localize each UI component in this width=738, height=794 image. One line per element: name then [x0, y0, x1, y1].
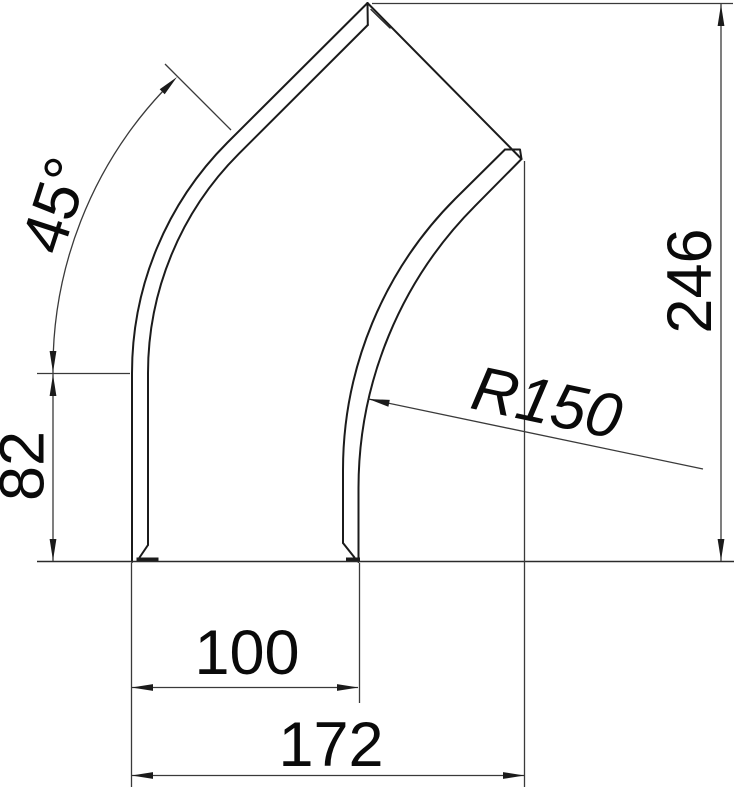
left-foot-chamfer: [140, 545, 149, 558]
bend-45deg-dimension-drawing: 45° 82 246 R150 100 172: [0, 0, 738, 794]
part-outline: [132, 3, 522, 562]
label-side-height-82: 82: [0, 431, 58, 501]
arrow-246-down-icon: [718, 539, 725, 561]
ext-line-45deg: [165, 64, 231, 130]
dimension-labels: 45° 82 246 R150 100 172: [0, 149, 725, 780]
right-foot-chamfer: [343, 543, 355, 558]
label-radius-r150: R150: [466, 353, 628, 453]
arrow-100-left-icon: [132, 684, 154, 691]
label-overall-height-246: 246: [655, 228, 725, 333]
arrow-45arc-upright-icon: [160, 77, 177, 94]
outer-rail-inner-face: [148, 25, 368, 545]
label-width-100: 100: [194, 618, 299, 688]
label-overall-width-172: 172: [278, 710, 383, 780]
top-end-cap-inner-edge: [371, 10, 390, 29]
arrow-172-right-icon: [503, 772, 525, 779]
dimension-lines: [37, 4, 734, 788]
arrow-100-right-icon: [337, 684, 359, 691]
label-angle-45deg: 45°: [8, 149, 104, 261]
arrow-82-down-icon: [50, 539, 57, 561]
arrow-45arc-down-icon: [50, 351, 57, 373]
arrow-r150-leader-icon: [369, 399, 390, 407]
arrow-172-left-icon: [132, 772, 154, 779]
technical-drawing-canvas: 45° 82 246 R150 100 172: [0, 0, 738, 794]
arrow-82-up-icon: [50, 375, 57, 397]
arrow-246-up-icon: [718, 5, 725, 27]
top-end-cap: [368, 3, 522, 159]
inner-rail-trough-face: [343, 150, 505, 544]
